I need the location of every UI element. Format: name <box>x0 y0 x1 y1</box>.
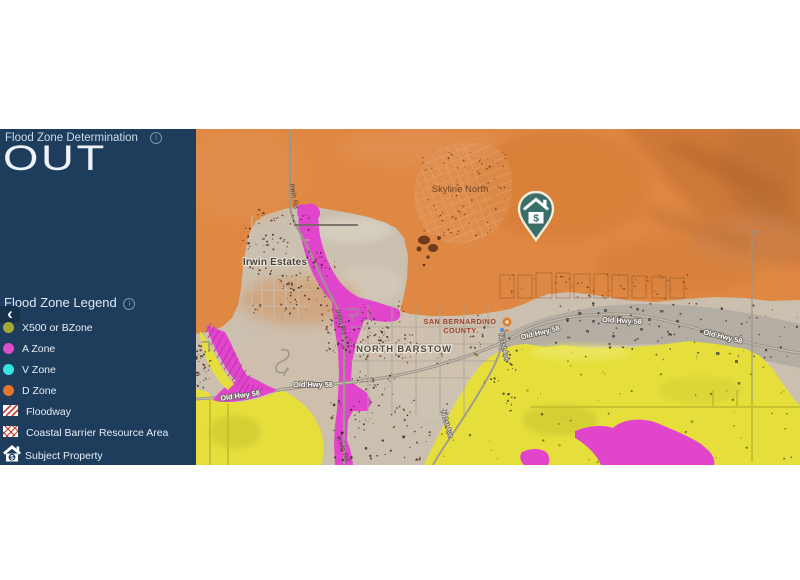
svg-text:COUNTY: COUNTY <box>443 326 476 335</box>
svg-text:Irwin Estates: Irwin Estates <box>243 257 308 268</box>
svg-text:NORTH BARSTOW: NORTH BARSTOW <box>356 344 452 355</box>
svg-text:$: $ <box>533 213 539 225</box>
svg-text:SAN BERNARDINO: SAN BERNARDINO <box>424 317 497 326</box>
svg-text:Skyline North: Skyline North <box>432 184 489 195</box>
svg-text:Old Hwy 58: Old Hwy 58 <box>293 380 333 389</box>
